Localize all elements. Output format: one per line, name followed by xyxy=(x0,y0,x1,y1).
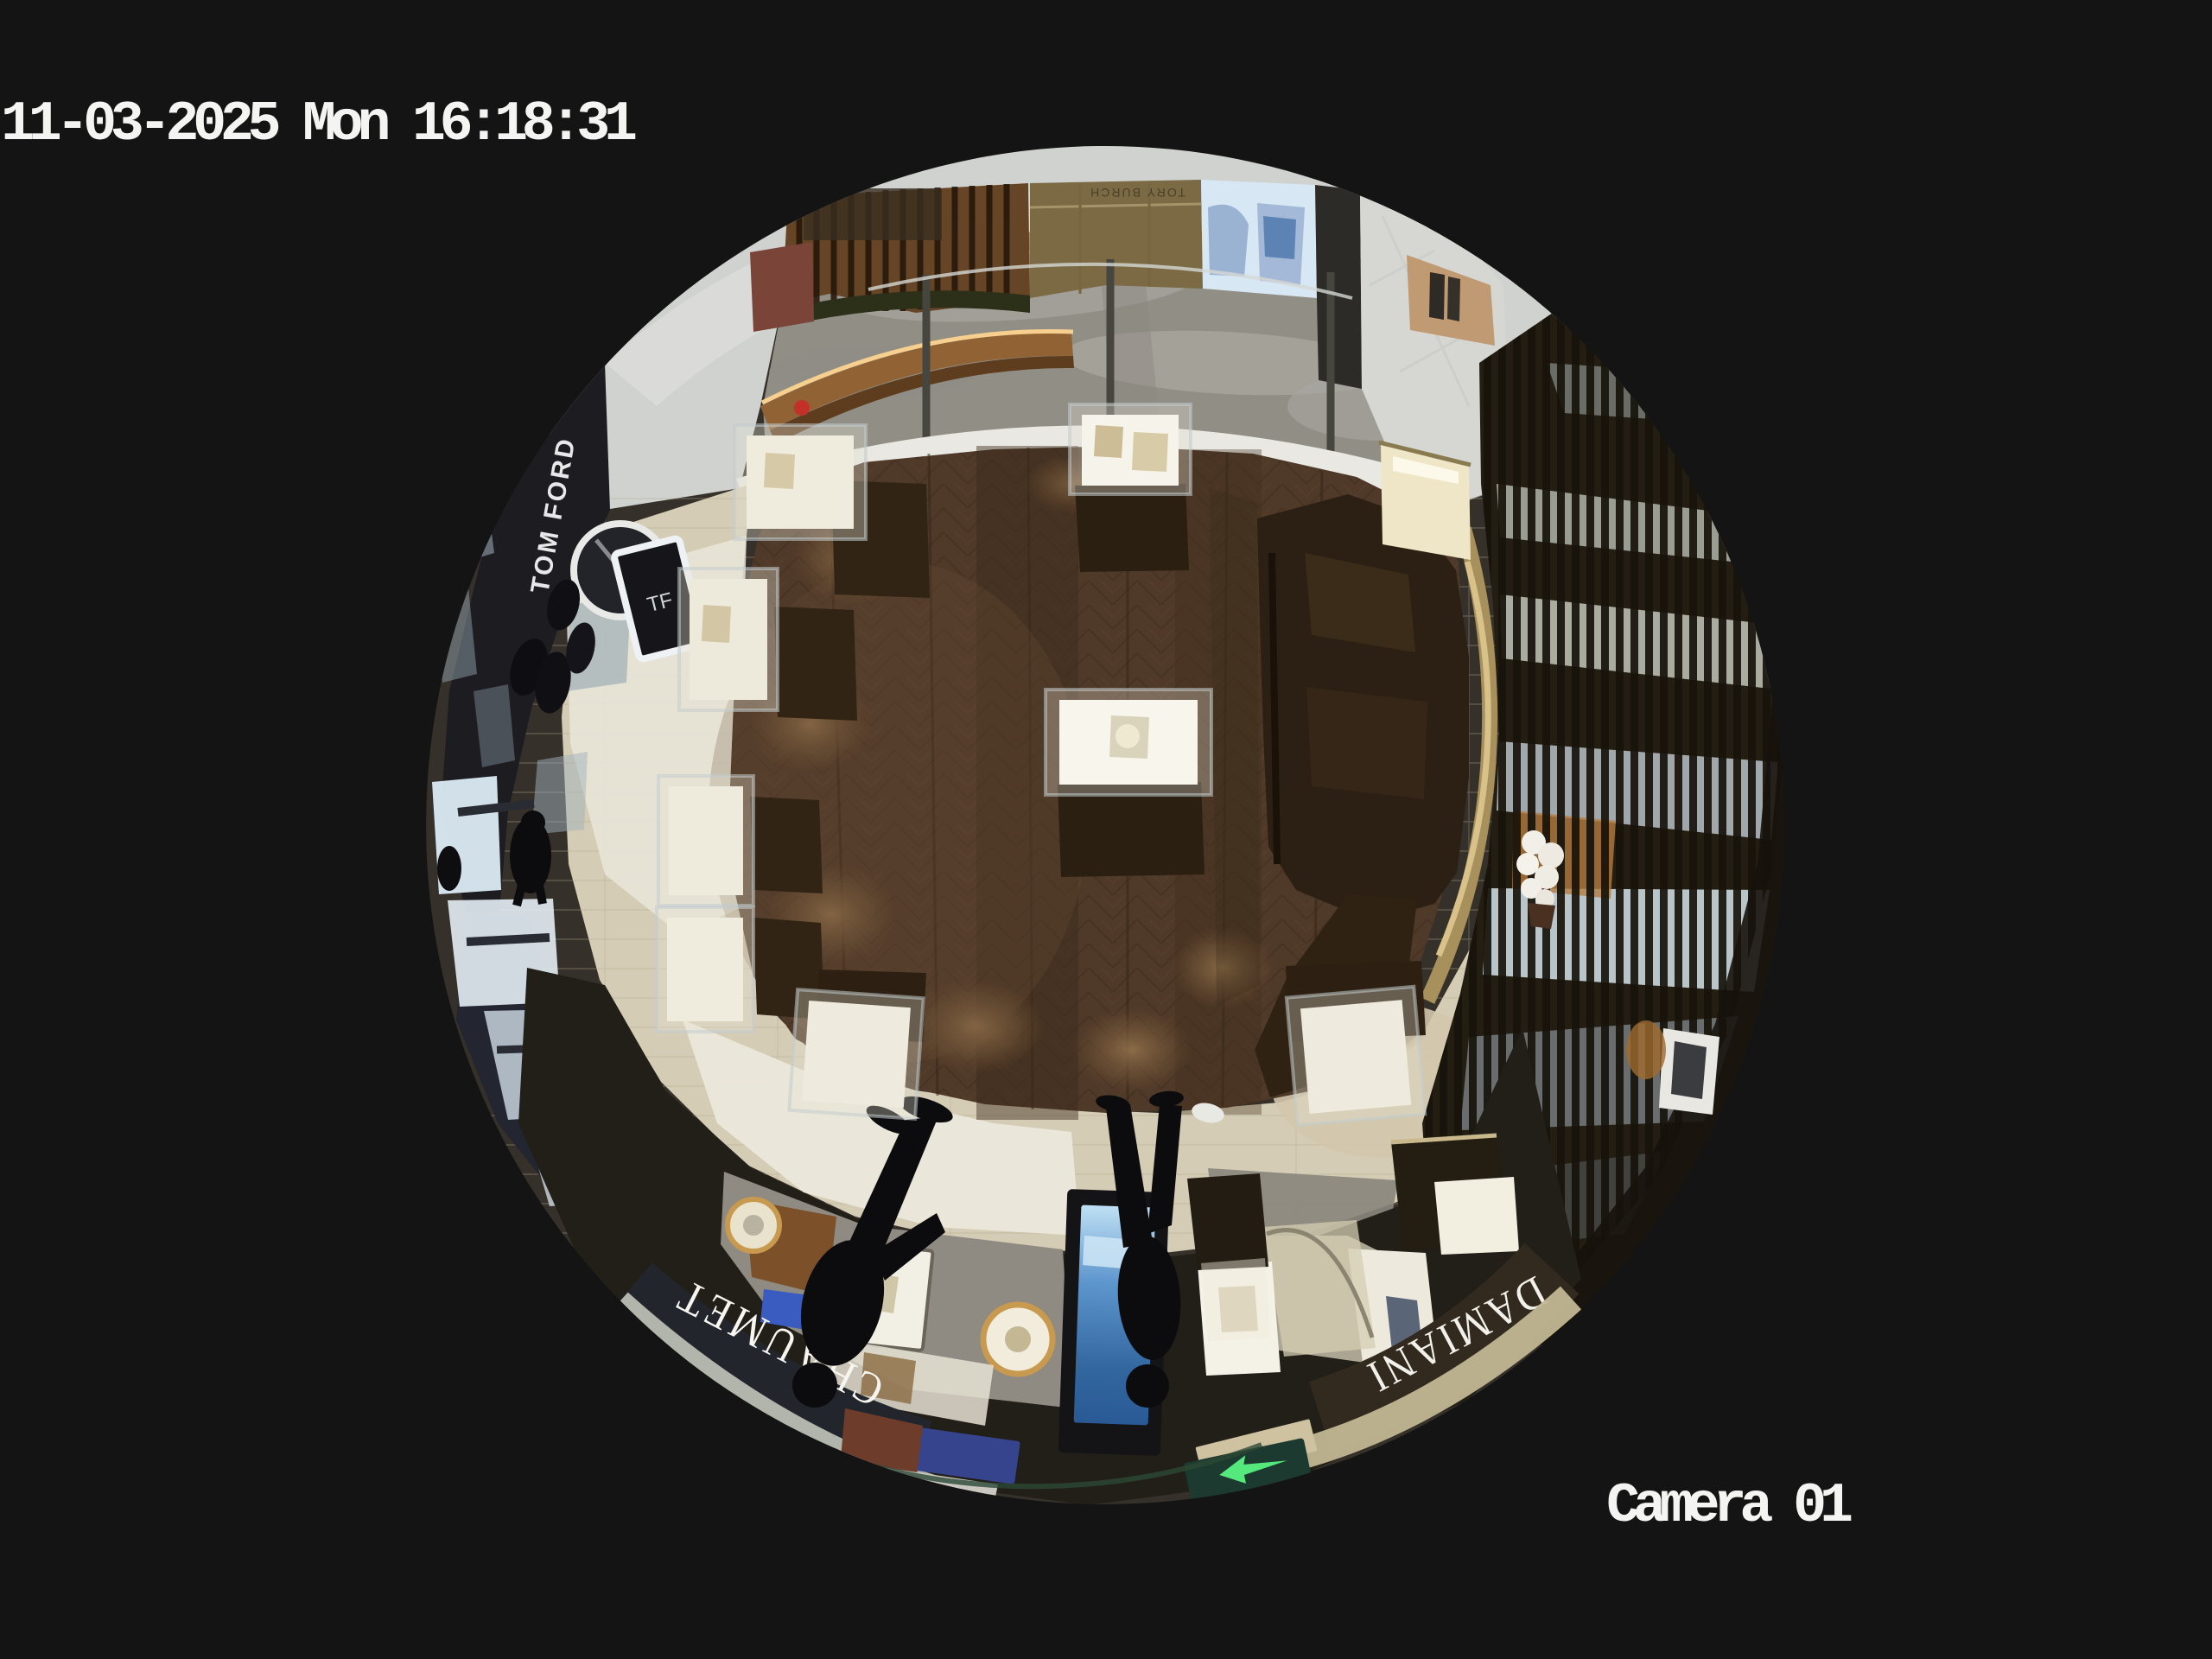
svg-text:11-03-2025 Mon 16:18:31: 11-03-2025 Mon 16:18:31 xyxy=(1,92,638,156)
svg-text:TORY BURCH: TORY BURCH xyxy=(1089,186,1185,200)
svg-text:Camera 01: Camera 01 xyxy=(1606,1474,1853,1538)
